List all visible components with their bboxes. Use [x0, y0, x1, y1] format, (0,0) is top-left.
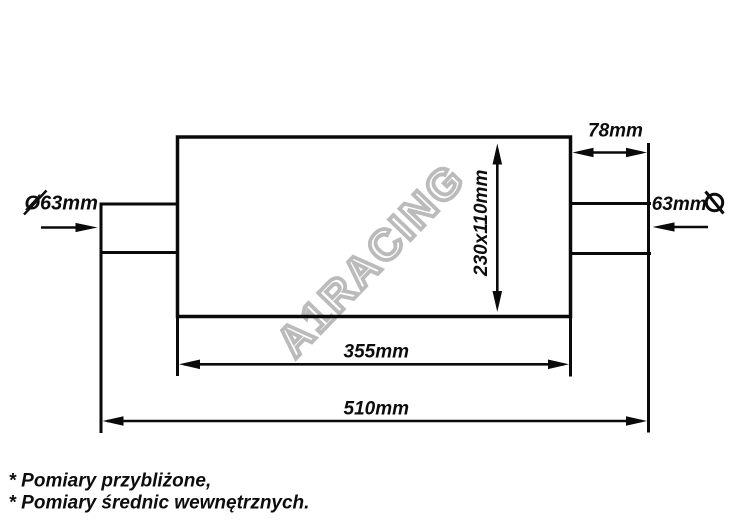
svg-text:* Pomiary średnic wewnętrznych: * Pomiary średnic wewnętrznych.	[9, 493, 310, 514]
svg-text:63mm: 63mm	[652, 194, 707, 215]
svg-text:510mm: 510mm	[344, 399, 410, 420]
svg-text:78mm: 78mm	[588, 121, 643, 142]
svg-text:* Pomiary przybliżone,: * Pomiary przybliżone,	[9, 471, 212, 492]
svg-text:355mm: 355mm	[344, 342, 410, 363]
svg-text:230x110mm: 230x110mm	[471, 170, 492, 277]
